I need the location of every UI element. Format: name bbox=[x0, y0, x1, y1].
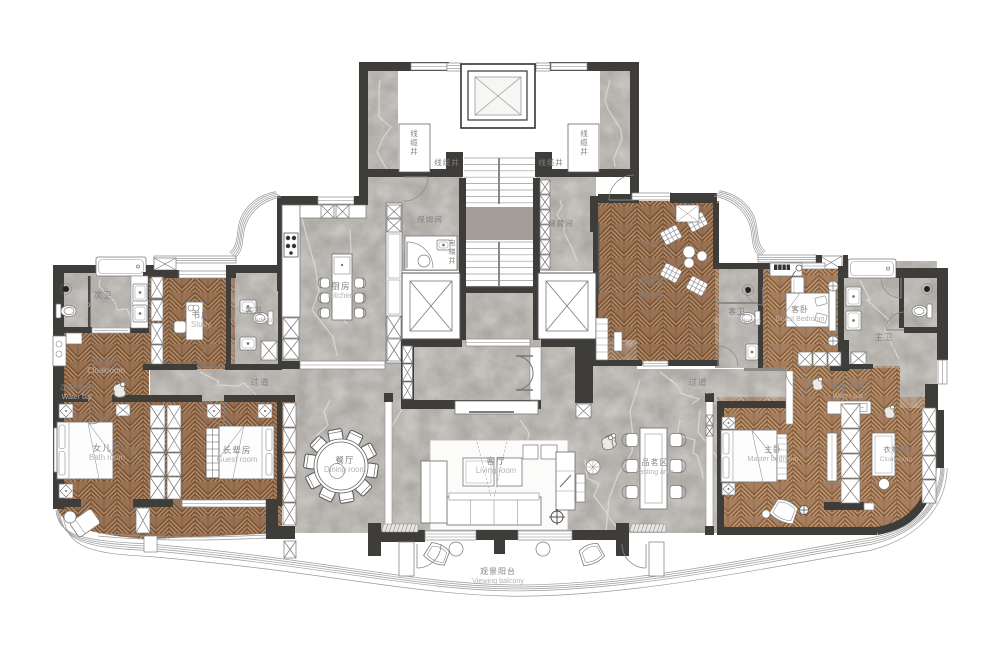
svg-text:Bath room: Bath room bbox=[89, 453, 125, 462]
svg-text:Dining room: Dining room bbox=[324, 465, 366, 474]
svg-text:Corridor: Corridor bbox=[684, 387, 713, 396]
svg-text:书房: 书房 bbox=[191, 309, 210, 320]
svg-text:线缆井: 线缆井 bbox=[538, 157, 564, 167]
svg-text:书房兼: 书房兼 bbox=[639, 277, 665, 287]
svg-text:缆: 缆 bbox=[580, 137, 588, 147]
svg-text:Secondary Guard: Secondary Guard bbox=[72, 300, 133, 309]
svg-text:线: 线 bbox=[410, 128, 418, 138]
svg-text:Guest Bedroom: Guest Bedroom bbox=[713, 318, 761, 325]
svg-text:Cloakroom: Cloakroom bbox=[880, 456, 913, 463]
svg-text:影音室: 影音室 bbox=[639, 289, 665, 299]
svg-text:厨房: 厨房 bbox=[331, 280, 350, 291]
svg-text:观景阳台: 观景阳台 bbox=[480, 566, 516, 576]
svg-text:井: 井 bbox=[580, 146, 588, 156]
svg-text:次卫: 次卫 bbox=[93, 289, 112, 300]
svg-text:餐厅: 餐厅 bbox=[335, 455, 354, 465]
svg-text:Guest room: Guest room bbox=[217, 455, 258, 464]
svg-text:Tasting area: Tasting area bbox=[636, 469, 674, 476]
svg-text:主卫: 主卫 bbox=[874, 331, 893, 342]
svg-text:线缆井: 线缆井 bbox=[434, 157, 460, 167]
svg-text:Corridor: Corridor bbox=[246, 387, 275, 396]
svg-text:Guest Bedroom: Guest Bedroom bbox=[230, 317, 278, 324]
svg-text:Living room: Living room bbox=[476, 466, 516, 475]
svg-text:Water bar: Water bar bbox=[62, 394, 93, 401]
svg-text:衣帽间: 衣帽间 bbox=[92, 355, 121, 366]
svg-text:Master Guard: Master Guard bbox=[860, 342, 908, 351]
svg-text:Cloakroom: Cloakroom bbox=[87, 366, 125, 375]
svg-text:主卧: 主卧 bbox=[764, 444, 782, 454]
svg-text:客卫: 客卫 bbox=[728, 306, 746, 316]
svg-text:过道: 过道 bbox=[688, 376, 707, 387]
svg-text:长辈房: 长辈房 bbox=[223, 444, 252, 455]
svg-text:次卧水吧: 次卧水吧 bbox=[60, 382, 94, 392]
svg-text:客卫: 客卫 bbox=[245, 305, 263, 315]
svg-text:过道: 过道 bbox=[250, 376, 269, 387]
svg-text:井: 井 bbox=[410, 146, 418, 156]
svg-text:线: 线 bbox=[580, 128, 588, 138]
svg-text:储藏间: 储藏间 bbox=[548, 218, 574, 228]
svg-text:Viewing balcony: Viewing balcony bbox=[472, 576, 524, 585]
svg-text:主卧水吧: 主卧水吧 bbox=[831, 381, 865, 391]
svg-text:Guest Bedroom: Guest Bedroom bbox=[775, 316, 824, 323]
svg-text:Master bedroom: Master bedroom bbox=[748, 456, 799, 463]
svg-text:Closet: Closet bbox=[551, 228, 571, 237]
svg-text:Water bar: Water bar bbox=[833, 393, 864, 400]
svg-text:Kitchen: Kitchen bbox=[328, 291, 354, 300]
svg-text:客厅: 客厅 bbox=[486, 455, 505, 466]
svg-text:衣帽间: 衣帽间 bbox=[883, 444, 909, 454]
svg-text:保姆间: 保姆间 bbox=[417, 214, 443, 224]
svg-text:品茗区: 品茗区 bbox=[642, 457, 668, 467]
svg-text:客卧: 客卧 bbox=[791, 304, 809, 314]
svg-text:井: 井 bbox=[449, 256, 456, 265]
svg-text:Study: Study bbox=[191, 320, 211, 329]
svg-text:缆: 缆 bbox=[410, 137, 418, 147]
svg-text:女儿房: 女儿房 bbox=[93, 442, 122, 453]
